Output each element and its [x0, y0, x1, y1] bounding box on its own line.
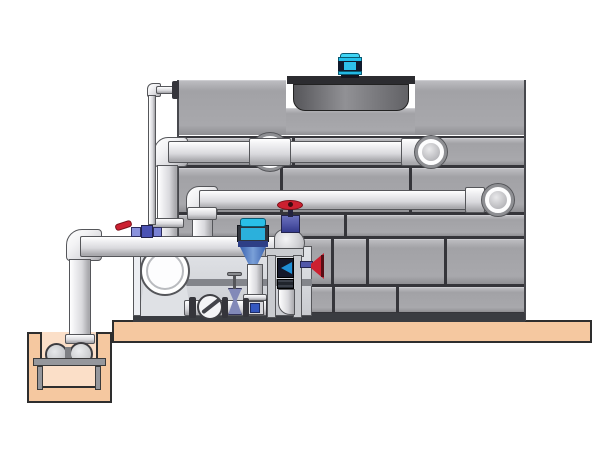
fan-cowl — [293, 84, 409, 111]
tower-block — [347, 215, 526, 236]
top-pipe-sleeve — [249, 138, 291, 166]
ball-valve-red-lever — [114, 220, 132, 232]
eductor-tee-blue-plate — [250, 303, 260, 313]
skid-pipe-flange-b — [222, 297, 228, 318]
tower-block — [447, 239, 526, 284]
gate-valve-body — [281, 215, 300, 233]
skid-pipe-flange-c — [243, 298, 249, 317]
sensor-box-lid — [240, 218, 266, 227]
sump-riser-pipe — [69, 259, 91, 341]
sump-pump-stand-leg-right — [95, 366, 101, 390]
foundation-slab — [112, 320, 592, 343]
diagram-canvas — [0, 0, 600, 450]
tower-right-edge — [524, 80, 526, 321]
top-pipe-end-dome — [422, 143, 440, 161]
sump-pump-stand-top — [33, 358, 106, 366]
middle-downcomer-sleeve — [187, 207, 217, 220]
sensor-box-face — [241, 228, 265, 240]
feed-line-vertical — [148, 95, 156, 225]
pump-casing-inner-ring — [146, 252, 184, 290]
panel-arrow-icon — [281, 262, 292, 274]
tower-block — [415, 80, 526, 135]
eductor-drop-pipe — [247, 264, 263, 298]
butterfly-valve-rim — [321, 255, 324, 277]
stand-post-left — [267, 255, 276, 318]
stand-panel-label — [277, 279, 294, 289]
tower-block — [335, 287, 396, 312]
small-gate-valve-handle — [227, 272, 242, 276]
tower-block — [334, 239, 366, 284]
feed-line-wall-flange — [172, 81, 179, 99]
middle-pipe-end-dome — [489, 191, 507, 209]
eductor-flange — [238, 241, 268, 247]
sump-pump-stand-leg-left — [37, 366, 43, 390]
tower-block — [178, 80, 286, 135]
small-gate-valve-stem — [233, 274, 236, 289]
stand-elbow-pipe — [278, 289, 295, 315]
tower-block — [286, 108, 415, 135]
ball-valve-body-c — [153, 227, 162, 237]
fan-motor — [338, 53, 362, 78]
fan-motor-feet — [341, 75, 359, 78]
skid-pipe-flange-a — [189, 297, 196, 318]
fan-motor-window — [344, 62, 356, 70]
tower-block — [369, 239, 444, 284]
top-pipe — [168, 141, 420, 163]
ball-valve-body-b — [141, 225, 153, 238]
ball-valve-body-a — [131, 227, 141, 237]
middle-pipe — [199, 190, 485, 210]
gate-valve-hub — [288, 202, 293, 207]
tower-block — [399, 287, 526, 312]
